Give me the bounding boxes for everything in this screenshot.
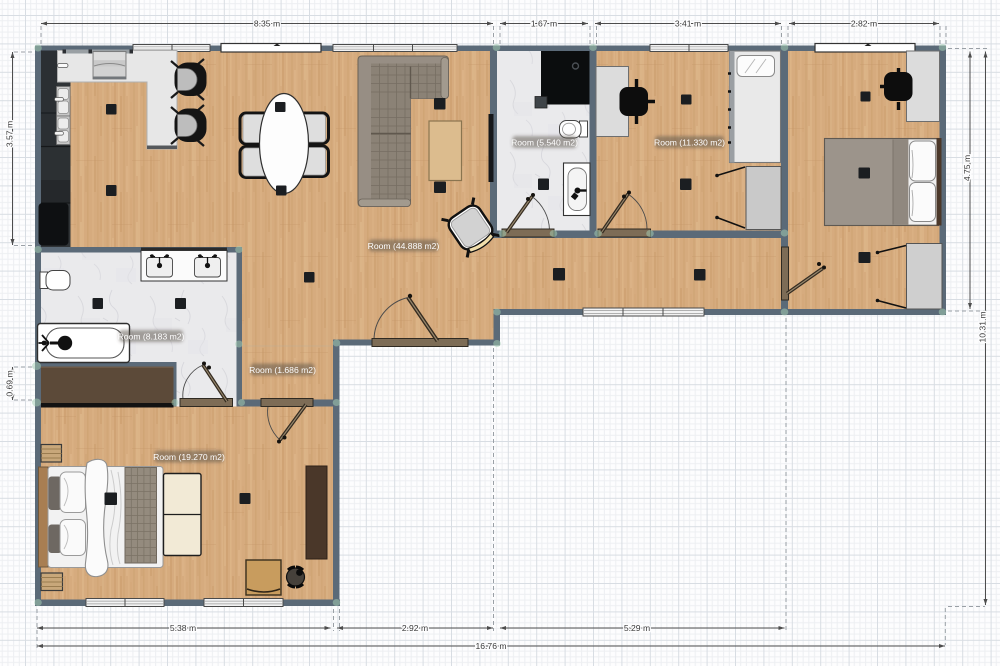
svg-text:1.67 m: 1.67 m: [531, 19, 557, 29]
svg-text:3.57 m: 3.57 m: [5, 121, 15, 147]
svg-text:5.38 m: 5.38 m: [170, 623, 196, 633]
svg-text:Room (11.330 m2): Room (11.330 m2): [654, 138, 725, 148]
svg-text:2.82 m: 2.82 m: [851, 19, 877, 29]
svg-text:Room (5.540 m2): Room (5.540 m2): [511, 138, 578, 148]
svg-text:Room (44.888 m2): Room (44.888 m2): [368, 241, 440, 251]
svg-text:Room (19.270 m2): Room (19.270 m2): [153, 452, 225, 462]
svg-text:3.41 m: 3.41 m: [675, 19, 701, 29]
svg-text:5.29 m: 5.29 m: [624, 623, 650, 633]
svg-text:8.35 m: 8.35 m: [254, 19, 280, 29]
svg-text:2.92 m: 2.92 m: [402, 623, 428, 633]
svg-text:0.69 m: 0.69 m: [5, 370, 15, 396]
svg-text:Room (8.183 m2): Room (8.183 m2): [118, 332, 185, 342]
svg-text:Room (1.686 m2): Room (1.686 m2): [249, 365, 316, 375]
svg-text:4.75 m: 4.75 m: [962, 155, 972, 181]
svg-text:10.31 m: 10.31 m: [978, 311, 988, 342]
svg-text:16.76 m: 16.76 m: [475, 641, 506, 651]
